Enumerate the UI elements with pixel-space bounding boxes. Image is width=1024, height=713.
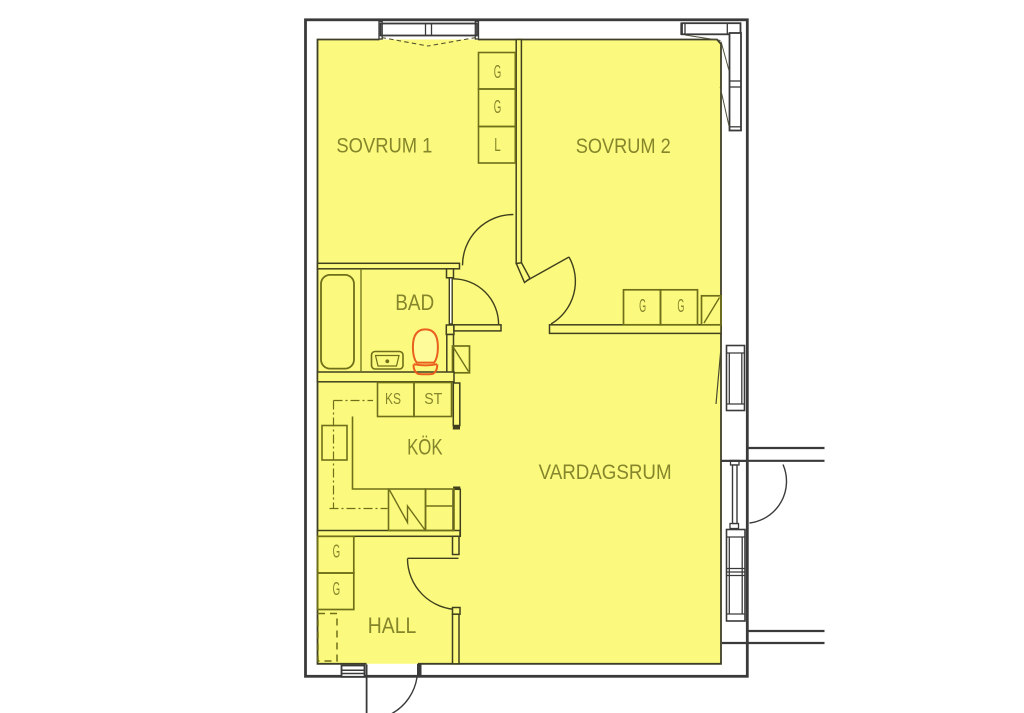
svg-text:BAD: BAD [395, 290, 434, 315]
svg-text:HALL: HALL [368, 613, 417, 638]
svg-text:G: G [639, 296, 646, 316]
svg-text:L: L [494, 135, 501, 155]
svg-text:VARDAGSRUM: VARDAGSRUM [539, 460, 672, 484]
svg-text:G: G [333, 541, 341, 562]
svg-text:G: G [494, 62, 502, 82]
svg-text:G: G [677, 296, 684, 316]
svg-text:SOVRUM 1: SOVRUM 1 [336, 134, 432, 158]
svg-text:KÖK: KÖK [407, 434, 443, 459]
svg-text:SOVRUM 2: SOVRUM 2 [576, 134, 671, 158]
svg-text:G: G [333, 578, 341, 599]
svg-text:ST: ST [424, 391, 442, 408]
svg-text:KS: KS [385, 391, 401, 408]
svg-text:G: G [494, 97, 502, 117]
